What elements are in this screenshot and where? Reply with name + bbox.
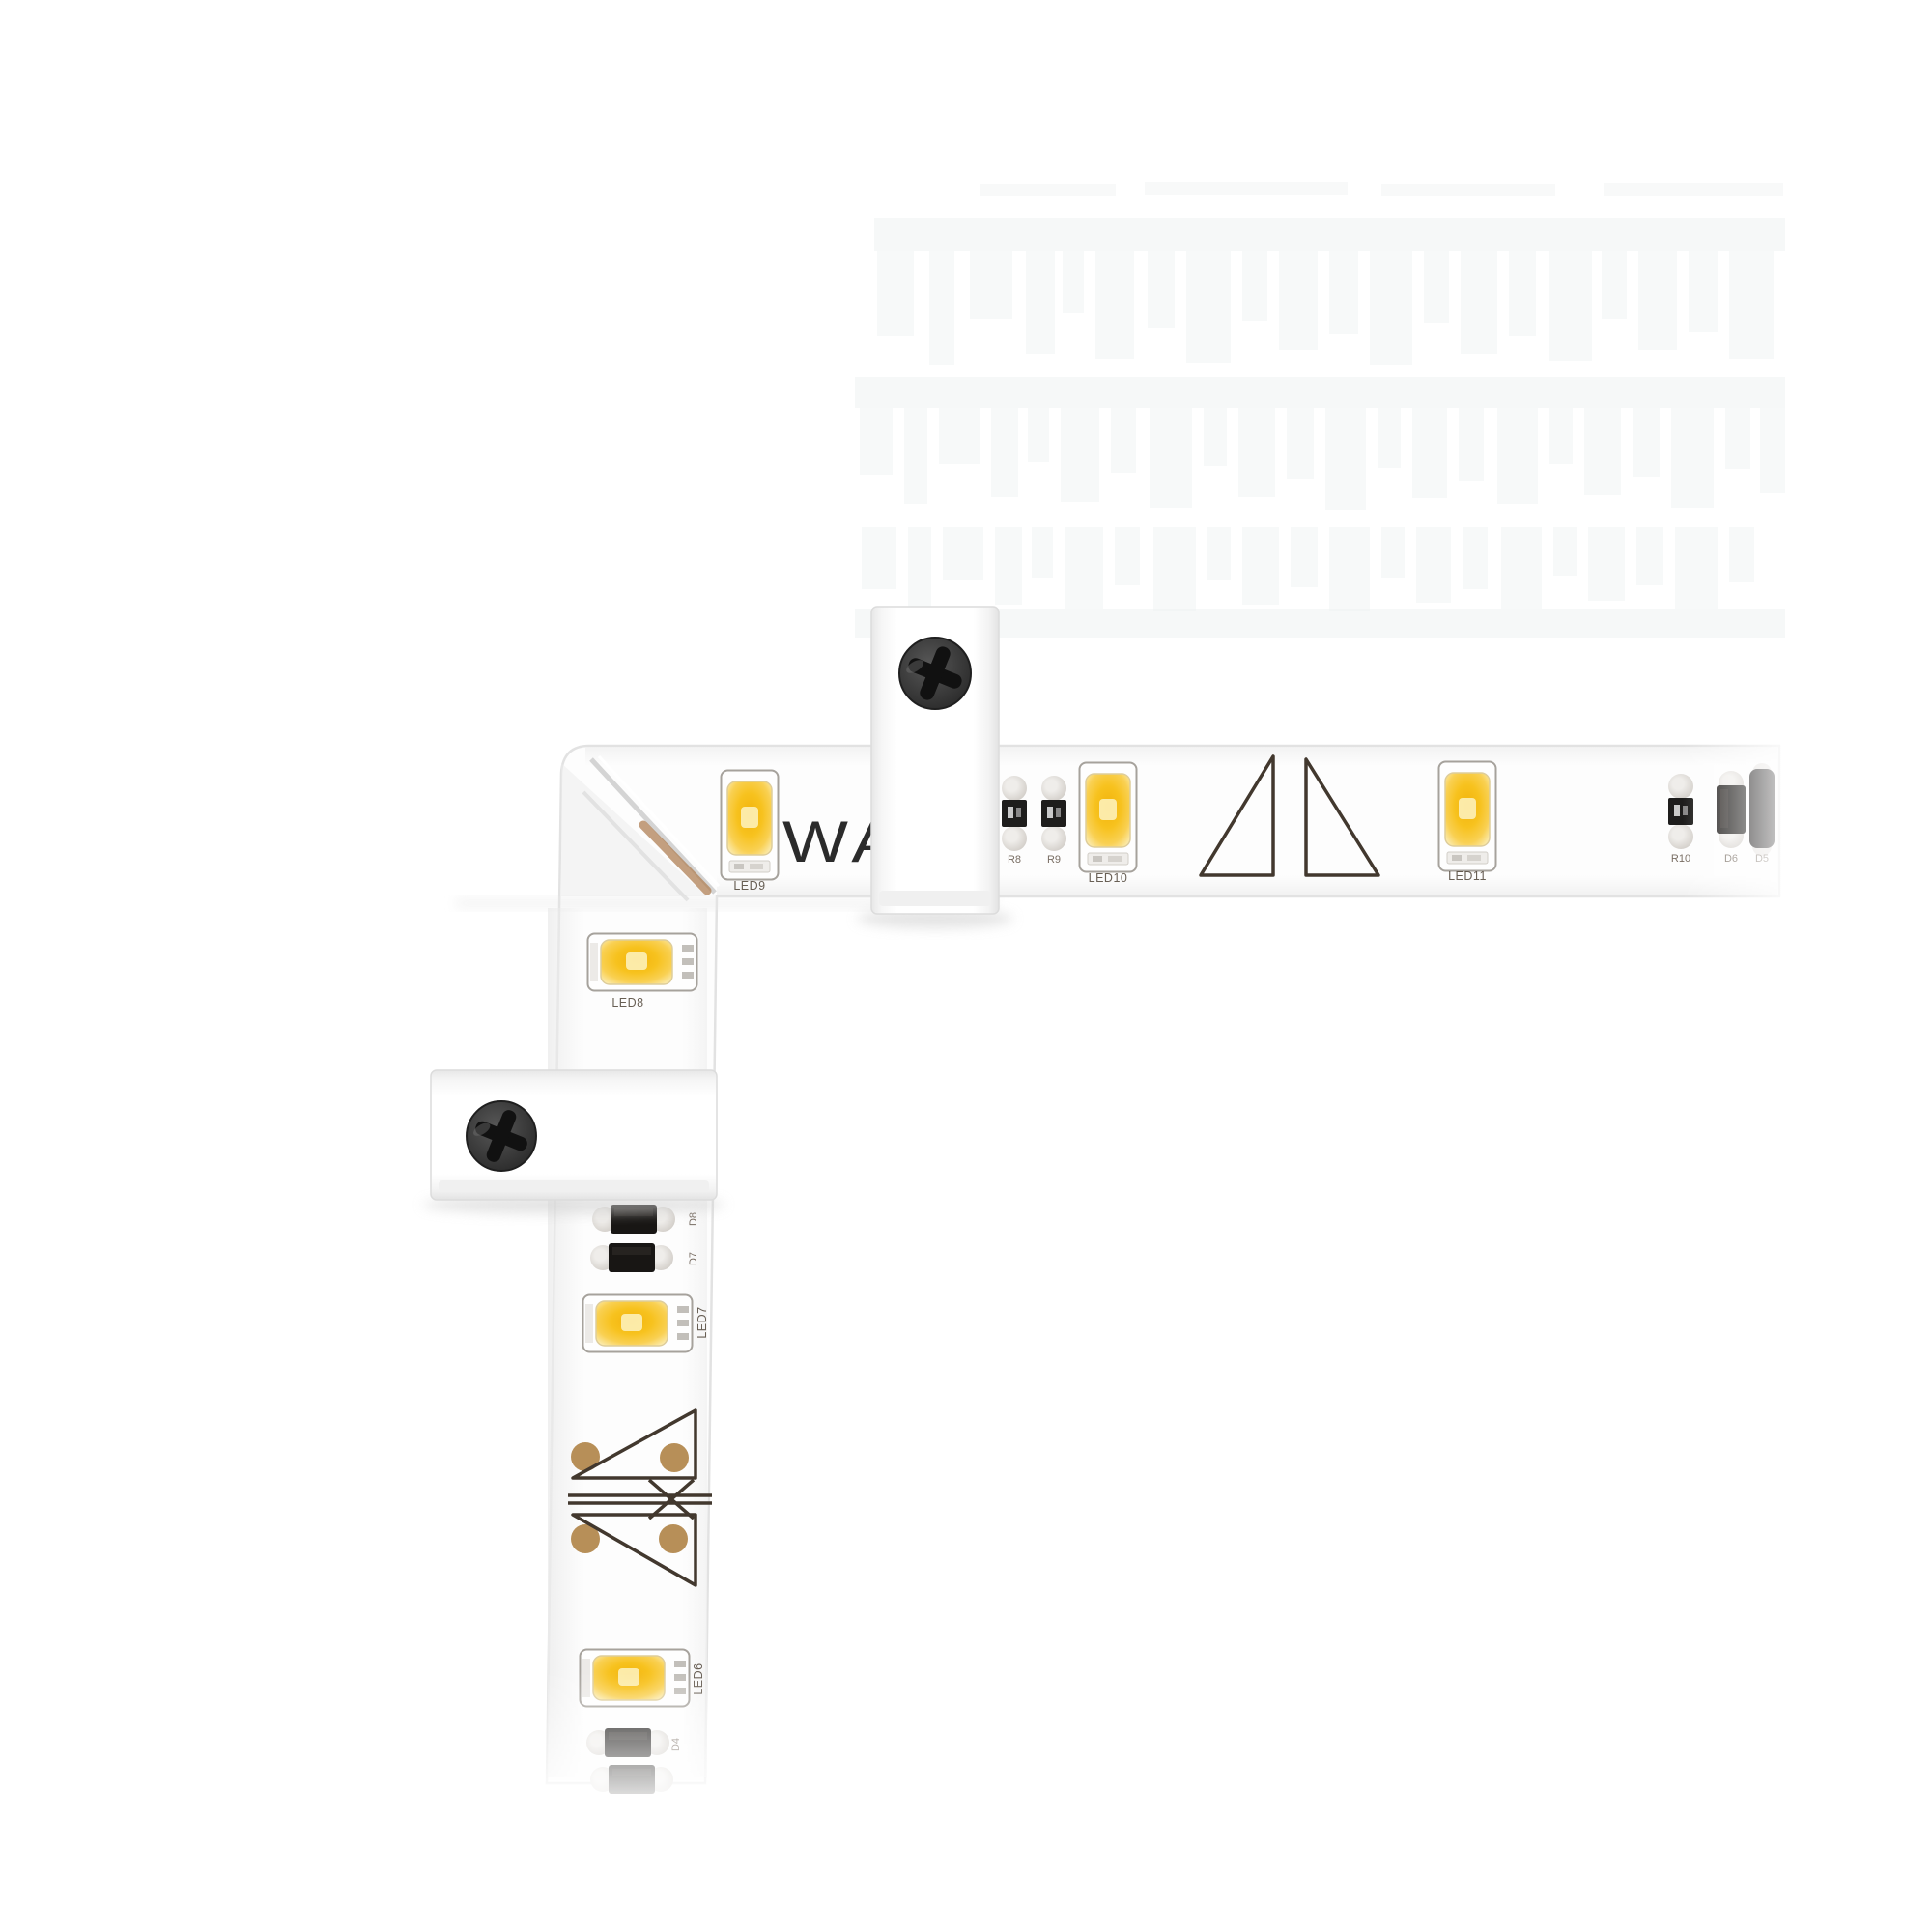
phillips-screw (898, 637, 972, 710)
ghost-block (1291, 527, 1318, 587)
ghost-block (1463, 527, 1488, 589)
ghost-block (1287, 408, 1314, 479)
ghost-block (1153, 527, 1196, 611)
ghost-block (855, 377, 1785, 408)
led-strip-scene: WA LED9LED10LED11LED8LED7LED6R8R9R10D6D5… (0, 0, 1932, 1932)
silkscreen-label: LED7 (696, 1306, 709, 1338)
led-chip (581, 1650, 690, 1707)
diode (1717, 771, 1746, 848)
diode (586, 1728, 669, 1757)
ghost-block (1729, 527, 1754, 582)
resistor (1041, 776, 1066, 851)
silkscreen-label: LED9 (733, 879, 765, 893)
ghost-block (1378, 408, 1401, 468)
ghost-block (1381, 184, 1555, 196)
ghost-block (1111, 408, 1136, 473)
product-photo-led-tape-light: WA LED9LED10LED11LED8LED7LED6R8R9R10D6D5… (0, 0, 1932, 1932)
ghost-block (1604, 183, 1783, 196)
ghost-block (1729, 251, 1774, 359)
ghost-block (1150, 408, 1192, 508)
silkscreen-label: LED10 (1089, 871, 1128, 885)
ghost-block (877, 251, 914, 336)
silkscreen-label: R9 (1047, 854, 1061, 866)
silkscreen-label: R8 (1008, 854, 1021, 866)
led-chip (1080, 763, 1137, 872)
ghost-block (1412, 408, 1447, 498)
vertical-strip-left-shading (548, 908, 584, 1777)
ghost-block (1671, 408, 1714, 508)
ghost-block (1242, 527, 1279, 605)
led-tape-strip: WA LED9LED10LED11LED8LED7LED6R8R9R10D6D5… (456, 746, 1779, 1794)
clip-lip (439, 1180, 709, 1192)
ghost-block (1238, 408, 1275, 497)
resistor (1002, 776, 1027, 851)
ghost-block (1032, 527, 1053, 578)
clip-lip (879, 891, 991, 906)
ghost-block (1588, 527, 1625, 601)
ghost-block (991, 408, 1018, 497)
ghost-block (1424, 251, 1449, 323)
led-chip (583, 1295, 693, 1352)
ghost-block (1370, 251, 1412, 365)
ghost-block (1026, 251, 1055, 354)
silkscreen-label: LED8 (611, 996, 643, 1009)
ghost-block (1760, 408, 1785, 493)
ghost-block (1028, 408, 1049, 462)
ghost-block (1636, 527, 1663, 585)
smd-components: LED9LED10LED11LED8LED7LED6R8R9R10D6D5D8D… (581, 762, 1776, 1795)
ghost-reflection-pattern (855, 182, 1785, 638)
ghost-block (970, 251, 1012, 319)
ghost-block (1584, 408, 1621, 495)
ghost-block (1065, 527, 1103, 609)
ghost-block (904, 408, 927, 504)
silkscreen-label: D5 (1755, 853, 1769, 865)
ghost-block (1602, 251, 1627, 319)
ghost-block (980, 184, 1116, 196)
ghost-block (1242, 251, 1267, 321)
ghost-block (1095, 251, 1134, 359)
ghost-block (1329, 527, 1370, 611)
silkscreen-label: D7 (688, 1252, 699, 1265)
ghost-block (995, 527, 1022, 605)
ghost-block (1497, 408, 1538, 504)
ghost-block (1207, 527, 1231, 580)
ghost-block (1416, 527, 1451, 603)
led-chip (722, 771, 779, 880)
led-chip (1439, 762, 1496, 871)
resistor (1668, 774, 1693, 849)
silkscreen-label: LED11 (1448, 869, 1487, 883)
ghost-block (1381, 527, 1405, 578)
ghost-block (1204, 408, 1227, 466)
ghost-block (929, 251, 954, 365)
mounting-clips (423, 607, 1013, 1214)
ghost-block (1459, 408, 1484, 481)
ghost-block (1148, 251, 1175, 328)
ghost-block (1501, 527, 1542, 609)
ghost-block (1675, 527, 1718, 609)
ghost-block (1725, 408, 1750, 469)
silkscreen-label: D6 (1724, 853, 1738, 865)
ghost-block (1549, 408, 1573, 464)
ghost-block (1115, 527, 1140, 585)
diode (590, 1765, 673, 1794)
ghost-block (1145, 182, 1348, 195)
ghost-block (943, 527, 983, 580)
ghost-block (1509, 251, 1536, 336)
ghost-block (1638, 251, 1677, 350)
ghost-block (1553, 527, 1577, 576)
ghost-block (862, 527, 896, 589)
ghost-block (860, 408, 893, 475)
ghost-block (1325, 408, 1366, 510)
led-chip (588, 934, 697, 991)
ghost-block (1063, 251, 1084, 313)
diode (590, 1243, 673, 1272)
ghost-block (1186, 251, 1231, 363)
ghost-block (939, 408, 980, 464)
ghost-block (874, 218, 1785, 251)
ghost-block (1279, 251, 1318, 350)
copper-solder-pad (660, 1443, 689, 1472)
ghost-block (1461, 251, 1497, 354)
silkscreen-label: R10 (1671, 853, 1690, 865)
diode (1749, 763, 1775, 856)
ghost-block (1689, 251, 1718, 332)
silkscreen-label: D4 (670, 1738, 682, 1751)
phillips-screw (466, 1100, 536, 1171)
strip-top-shading (585, 747, 1777, 766)
silkscreen-label: D8 (688, 1212, 699, 1226)
ghost-block (908, 527, 931, 609)
ghost-block (1633, 408, 1660, 477)
ghost-block (1061, 408, 1099, 502)
ghost-block (1329, 251, 1358, 334)
copper-solder-pad (659, 1524, 688, 1553)
silkscreen-label: LED6 (692, 1662, 705, 1694)
ghost-block (1549, 251, 1592, 361)
